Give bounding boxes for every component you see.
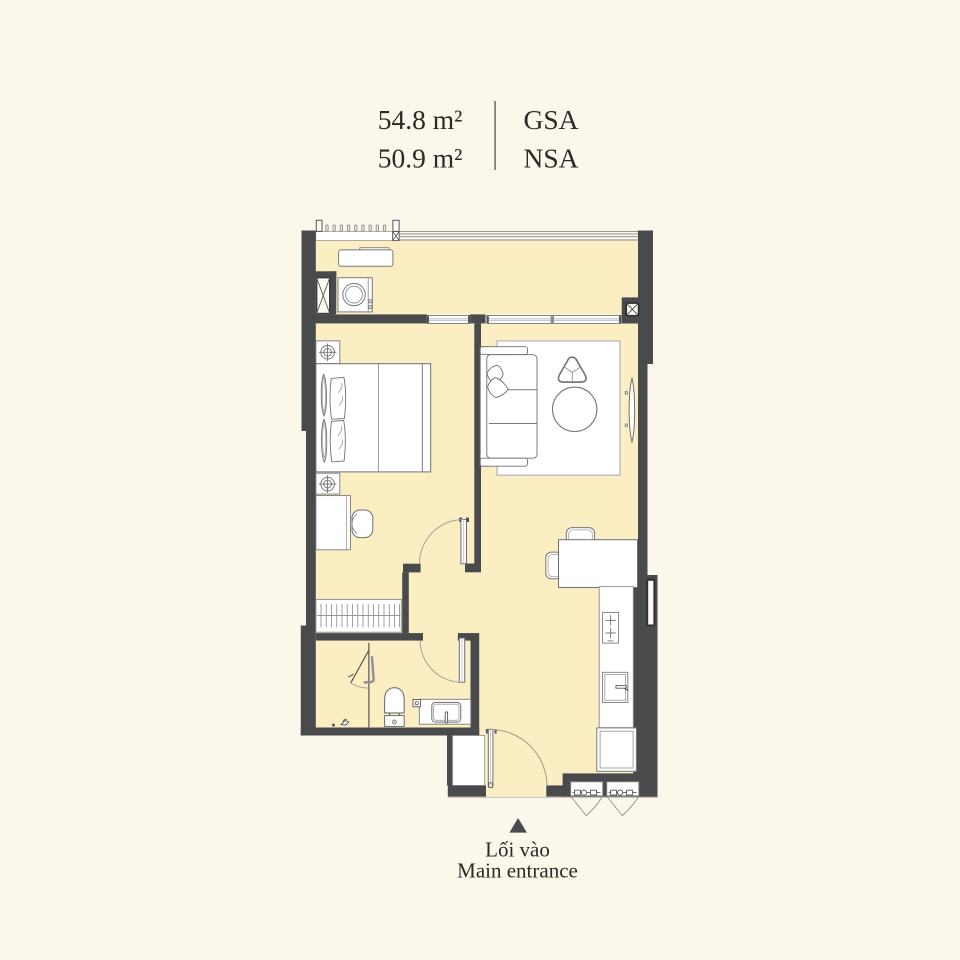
- svg-text:Main entrance: Main entrance: [457, 859, 578, 883]
- svg-text:50.9 m²: 50.9 m²: [378, 143, 463, 174]
- svg-text:NSA: NSA: [524, 143, 579, 174]
- svg-text:GSA: GSA: [524, 104, 579, 135]
- svg-text:54.8 m²: 54.8 m²: [378, 104, 463, 135]
